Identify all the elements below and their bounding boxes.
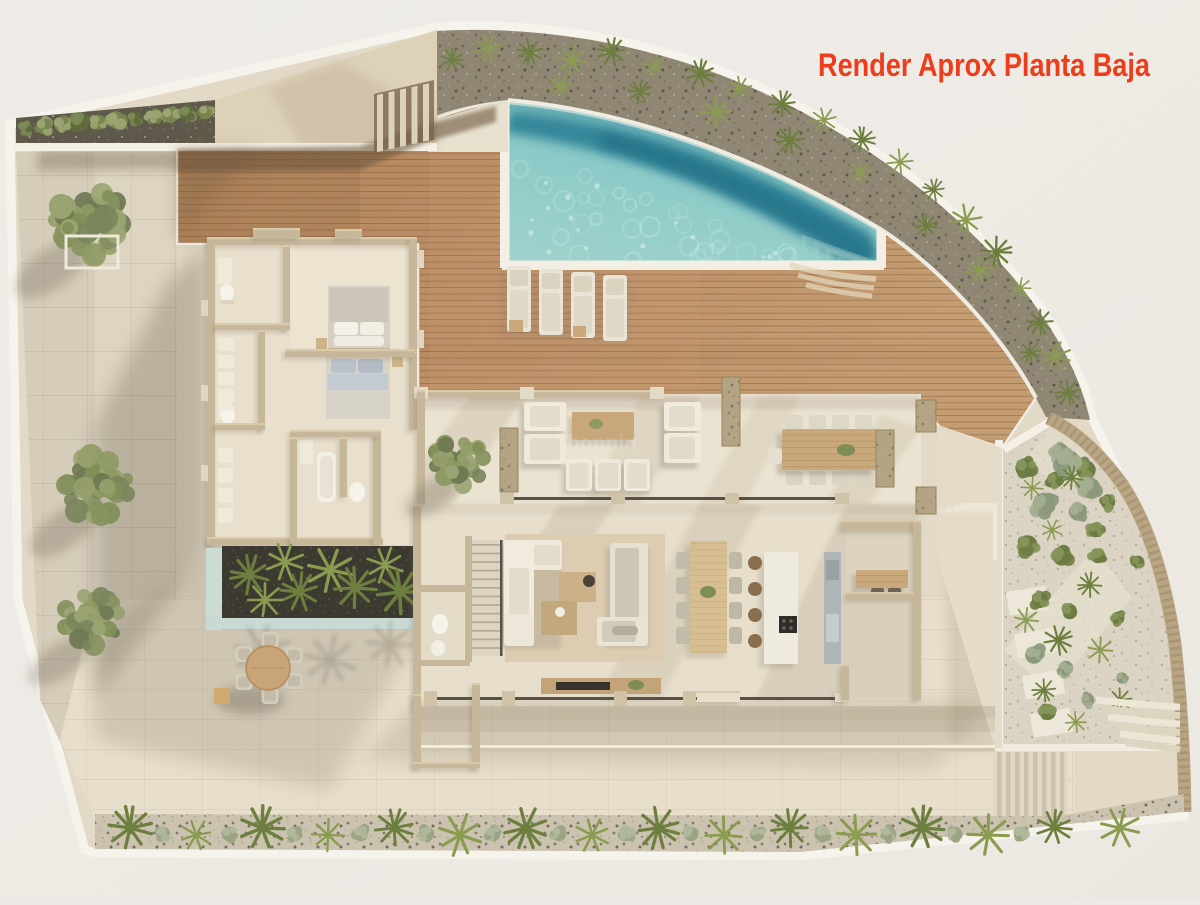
svg-text:Render Aprox Planta Baja: Render Aprox Planta Baja (818, 47, 1150, 83)
svg-text:s…: s… (585, 458, 615, 479)
svg-text:bonnin: bonnin (567, 432, 637, 455)
